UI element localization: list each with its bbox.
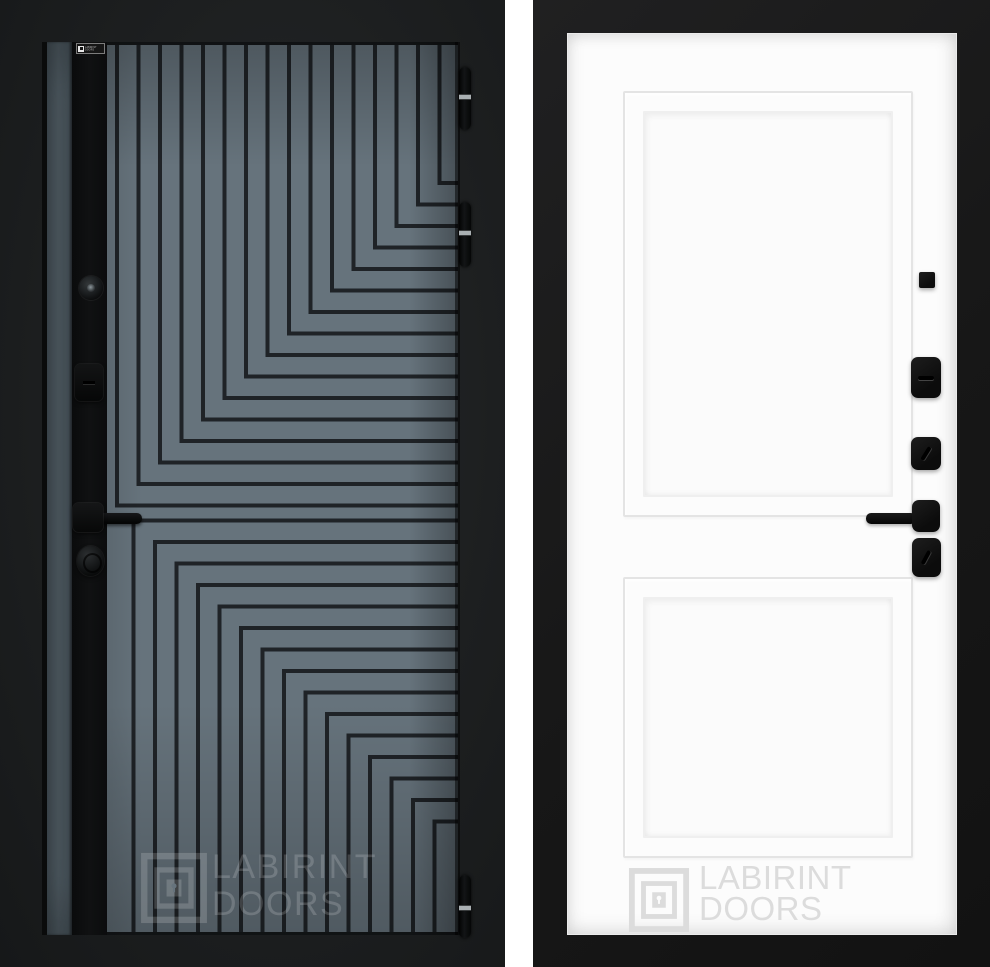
hinge-band (459, 906, 471, 910)
hinge-band (459, 231, 471, 235)
door-lock-strip (72, 42, 107, 935)
bottom-panel-field (643, 597, 893, 838)
watermark-text: LABIRINT DOORS (699, 862, 852, 924)
deadbolt-knob (77, 546, 104, 576)
door-handle-base (912, 500, 940, 532)
product-image-stage: LABIRINT DOORS LABIRINT DOORS (0, 0, 990, 967)
keyhole-icon (920, 446, 931, 461)
brand-plate-logo-icon (78, 46, 84, 52)
door-handle-base (73, 503, 103, 532)
door-labyrinth-pattern (107, 42, 458, 935)
door-hinge-top (459, 67, 471, 130)
keyhole-icon (921, 550, 932, 565)
watermark-text: LABIRINT DOORS (212, 849, 377, 923)
key-cylinder-upper (911, 437, 941, 470)
right-door-photo: LABIRINT DOORS (533, 0, 990, 967)
white-door-leaf (567, 33, 957, 935)
brand-plate: LABIRINT DOORS (76, 43, 105, 54)
key-cylinder-lower (912, 538, 941, 577)
decorative-escutcheon-icon (79, 276, 103, 300)
brand-plate-text: LABIRINT DOORS (85, 46, 97, 51)
door-hinge-bottom (459, 875, 471, 938)
door-leaf-right-shadow (455, 42, 460, 935)
thumbturn-lock (911, 357, 941, 398)
thumbturn-slot-icon (83, 381, 95, 384)
door-hinge-middle (459, 202, 471, 267)
lock-indicator (919, 272, 935, 288)
left-door-photo: LABIRINT DOORS LABIRINT DOORS (0, 0, 505, 967)
labyrinth-logo-icon (140, 851, 208, 925)
labyrinth-logo-icon (628, 866, 690, 934)
thumbturn-slot-icon (918, 376, 934, 380)
hinge-band (459, 95, 471, 99)
top-panel-field (643, 111, 893, 497)
door-handle-lever (866, 513, 916, 524)
thumbturn-lock (75, 364, 103, 401)
door-edge-gray-strip (47, 42, 72, 935)
labyrinth-pattern-svg (107, 42, 458, 935)
